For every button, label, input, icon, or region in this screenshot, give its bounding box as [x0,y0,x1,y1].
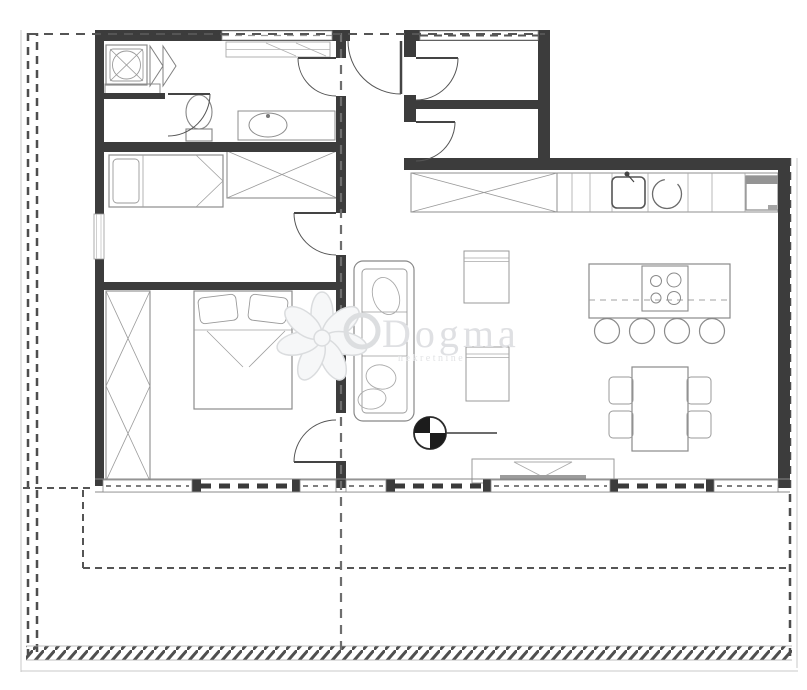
floor-plan-image: Dogmanekretnine [0,0,807,690]
burner [651,276,662,287]
kitchen-counter [411,173,778,212]
pillow [198,294,239,324]
window [94,214,104,259]
boundary-bottom-hatch [26,646,792,660]
bedroom1-door-swing [294,213,336,255]
kitchen-island [589,264,730,318]
bar-stool [665,319,690,344]
toilet-tank [186,129,212,141]
wall [103,93,165,99]
blanket-fold [207,331,243,367]
burner [667,273,681,287]
chair [609,411,633,438]
wall [103,142,336,152]
sofa-pillow [364,362,398,392]
bar-stool [595,319,620,344]
kitchen-sink [612,177,645,208]
pillow [248,294,289,324]
storage-door-swing [416,122,455,161]
watermark-tagline: nekretnine [398,353,465,364]
bathroom-door-swing [298,58,336,96]
burner [668,292,681,305]
chair [687,411,711,438]
entrance-door-swing [348,41,401,94]
watermark-flower-center [314,330,330,346]
wall-post [192,479,201,492]
wall-post [386,479,395,492]
floor-plan-layers: Dogmanekretnine [21,30,798,672]
faucet [266,114,270,118]
north-symbol-quadrant [430,433,446,449]
fridge-mark [768,205,777,210]
wall [778,158,790,488]
wardrobe-tall [106,291,150,481]
wall [416,100,550,109]
bar-stool [630,319,655,344]
sofa-pillow [357,387,388,411]
floor-plan-svg: Dogmanekretnine [0,0,807,690]
fridge-top-band [746,176,778,184]
burner [651,293,661,303]
north-symbol-quadrant [414,417,430,433]
wall [404,158,790,170]
side-table [464,251,509,303]
closet-bifold-door [150,46,163,86]
bar-stool [700,319,725,344]
bed-fold [196,181,223,207]
chair [687,377,711,404]
bed-fold [196,155,223,181]
wall-post [706,479,714,492]
round-sink [653,180,682,209]
chair [609,377,633,404]
watermark-brand: Dogma [382,311,520,356]
single-bed [109,155,223,207]
pillow [113,159,139,203]
wc-door-swing [416,58,458,100]
tv [514,462,572,477]
bedroom2-door-swing [294,420,336,462]
wall [404,95,416,122]
wall [103,282,336,290]
cooktop [642,266,688,311]
dining-table [632,367,688,451]
faucet-spout [627,174,634,182]
wall-post [610,479,618,492]
toilet-bowl [186,95,212,129]
closet-bifold-door [163,46,176,86]
wall-post [483,479,491,492]
